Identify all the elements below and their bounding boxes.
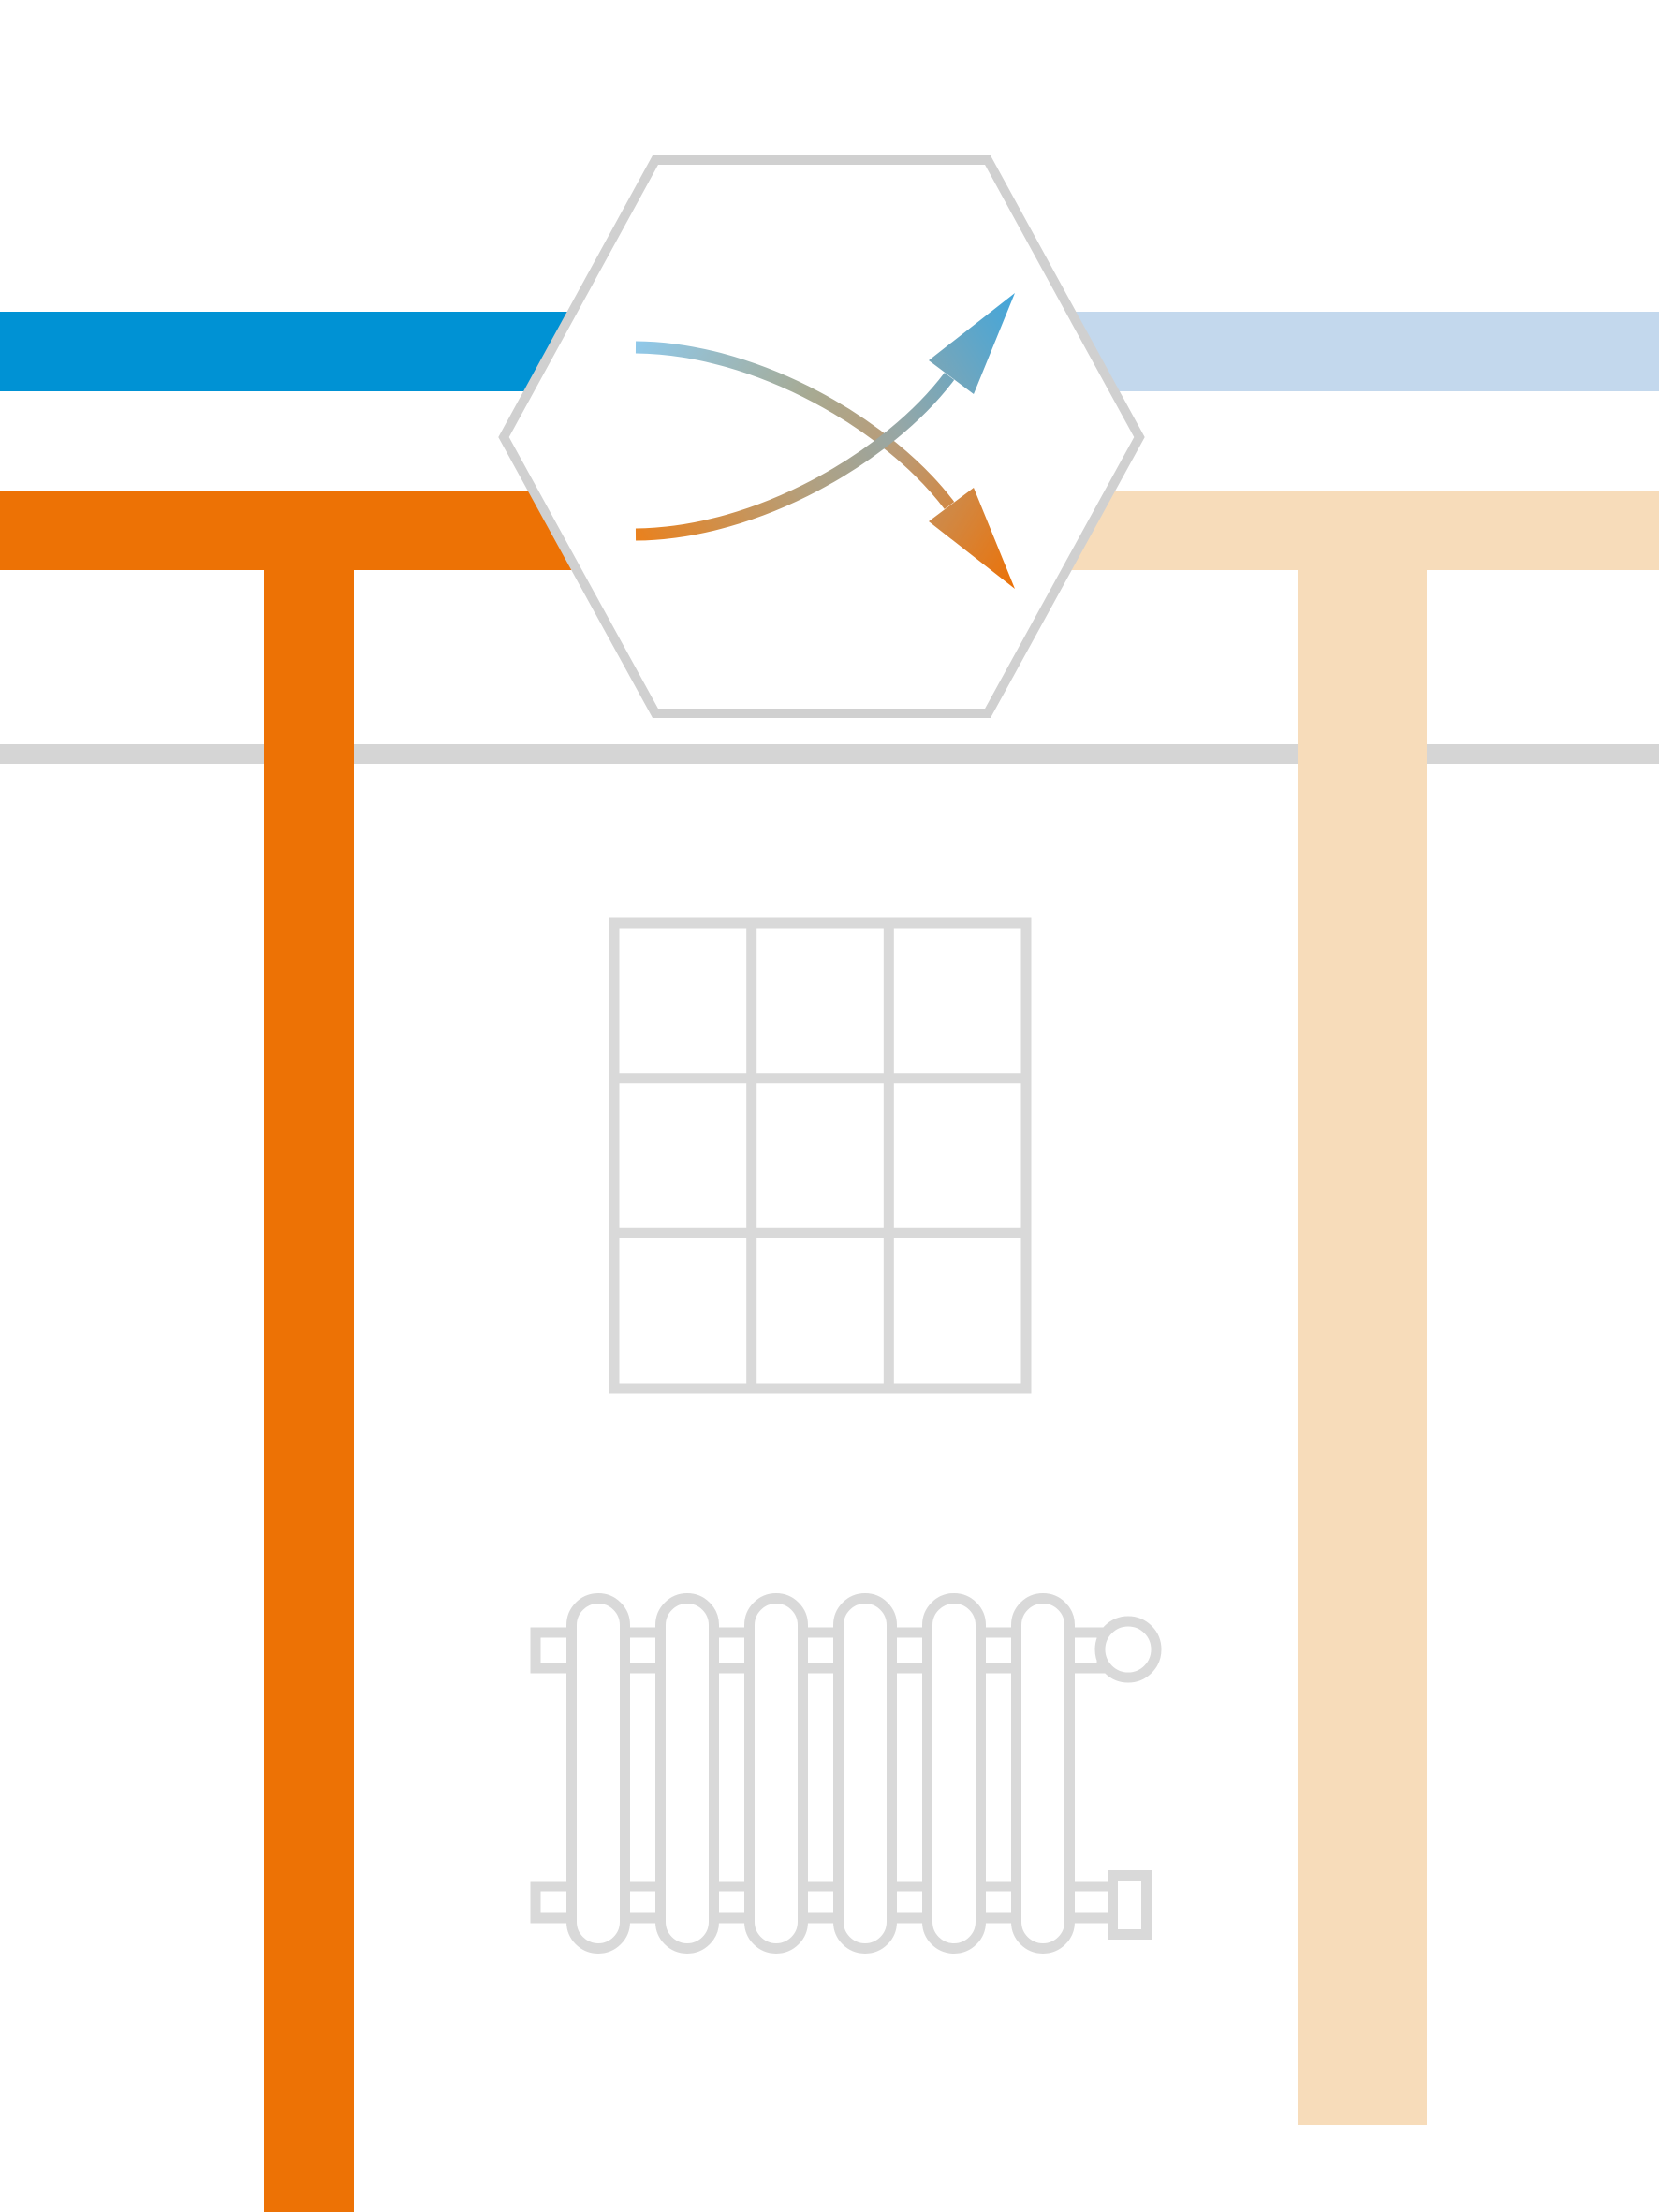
- radiator-valve-knob: [1100, 1621, 1156, 1677]
- heat-exchanger-hexagon-icon: [504, 160, 1139, 713]
- radiator-tube: [928, 1599, 981, 1949]
- radiator-tube: [572, 1599, 625, 1949]
- radiator-tube: [750, 1599, 803, 1949]
- heat-exchanger-diagram: [0, 0, 1659, 2212]
- radiator-tube: [1017, 1599, 1070, 1949]
- diagram-canvas: [0, 0, 1659, 2212]
- radiator-icon: [536, 1599, 1156, 1949]
- radiator-fitting: [1113, 1876, 1147, 1935]
- window-frame: [614, 923, 1026, 1388]
- window-icon: [614, 923, 1026, 1388]
- radiator-tube: [661, 1599, 714, 1949]
- radiator-tube: [839, 1599, 892, 1949]
- light-orange-riser-pipe: [1298, 491, 1427, 2125]
- orange-riser-pipe: [264, 491, 354, 2212]
